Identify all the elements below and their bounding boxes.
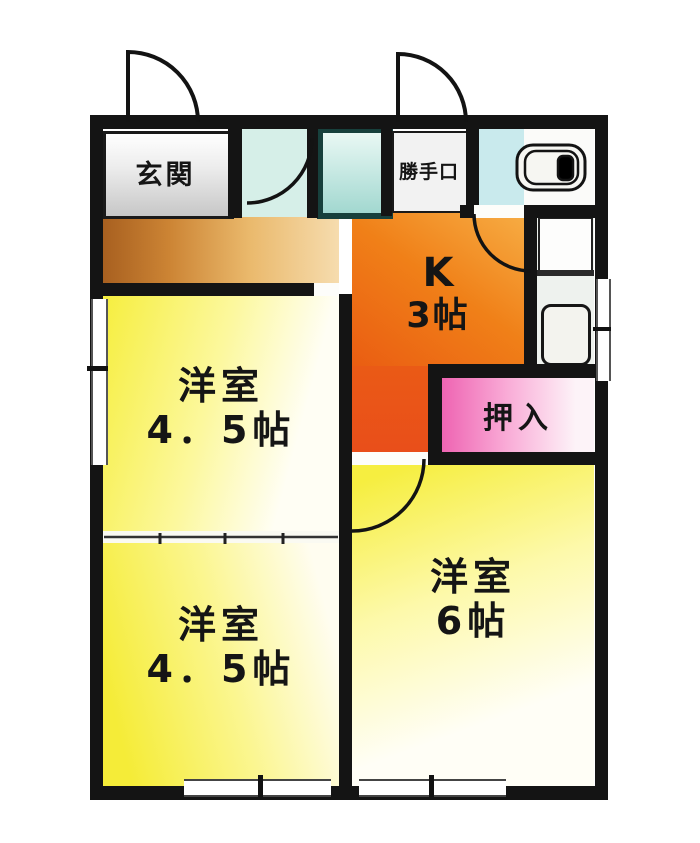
kitchen-size-text: 3帖: [406, 296, 469, 336]
toilet-shelf: [538, 217, 593, 274]
doorway-room-se: [352, 452, 428, 465]
backdoor-label-text: 勝手口: [399, 157, 459, 184]
backdoor-label: 勝手口: [392, 131, 466, 209]
room-northwest-label-text: 洋室: [178, 365, 264, 409]
wall-hallway-room: [103, 283, 314, 296]
wall-bottom: [90, 786, 608, 800]
wall-above-closet: [428, 364, 595, 378]
bathroom-area: [524, 128, 594, 206]
room-northwest-size-text: 4．5帖: [147, 409, 296, 453]
entrance-label-text: 玄関: [136, 153, 196, 192]
kitchen-label-text: K: [423, 250, 454, 296]
wall-below-closet: [428, 452, 595, 465]
window-bottom-left-tick: [258, 775, 263, 797]
backdoor-door-swing-arc: [398, 54, 466, 122]
kitchen-lower-area: [352, 366, 428, 454]
room-southwest-label: 洋室 4．5帖: [103, 583, 339, 713]
wall-genkan-washroom: [228, 128, 242, 218]
floor-plan: 玄関 勝手口 K 3帖 洋室 4．5帖 洋室 4．5帖 洋室 6帖 押入: [0, 0, 700, 843]
closet-label: 押入: [442, 378, 594, 452]
sliding-partition: [103, 531, 339, 543]
wall-closet-left: [428, 364, 442, 465]
wall-backdoor-bath: [466, 128, 479, 216]
wall-top: [90, 115, 608, 129]
room-southeast-label-text: 洋室: [430, 556, 516, 600]
wall-unit-backdoor: [381, 126, 392, 216]
doorway-bath: [474, 205, 524, 218]
bath-entry-area: [479, 128, 525, 208]
closet-label-text: 押入: [483, 393, 553, 437]
room-southeast-size-text: 6帖: [436, 600, 510, 644]
kitchen-label: K 3帖: [352, 238, 524, 348]
toilet-room: [537, 216, 594, 366]
wall-center-vertical: [339, 294, 352, 786]
window-right-tick: [593, 327, 611, 331]
wall-toilet-left: [524, 205, 537, 366]
entrance-label: 玄関: [103, 131, 228, 213]
toilet-icon: [541, 304, 591, 366]
wall-washroom-unit: [307, 126, 318, 218]
window-bottom-right-tick: [429, 775, 434, 797]
wall-toilet-divider: [537, 270, 594, 276]
room-southeast-label: 洋室 6帖: [352, 535, 594, 665]
room-northwest-label: 洋室 4．5帖: [103, 344, 339, 474]
room-southwest-label-text: 洋室: [178, 604, 264, 648]
washroom-area: [242, 129, 307, 217]
hallway-area: [103, 211, 339, 294]
room-southwest-size-text: 4．5帖: [147, 648, 296, 692]
wall-right: [595, 115, 608, 800]
entrance-door-swing-arc: [128, 52, 198, 122]
doorway-room-nw: [314, 283, 339, 296]
